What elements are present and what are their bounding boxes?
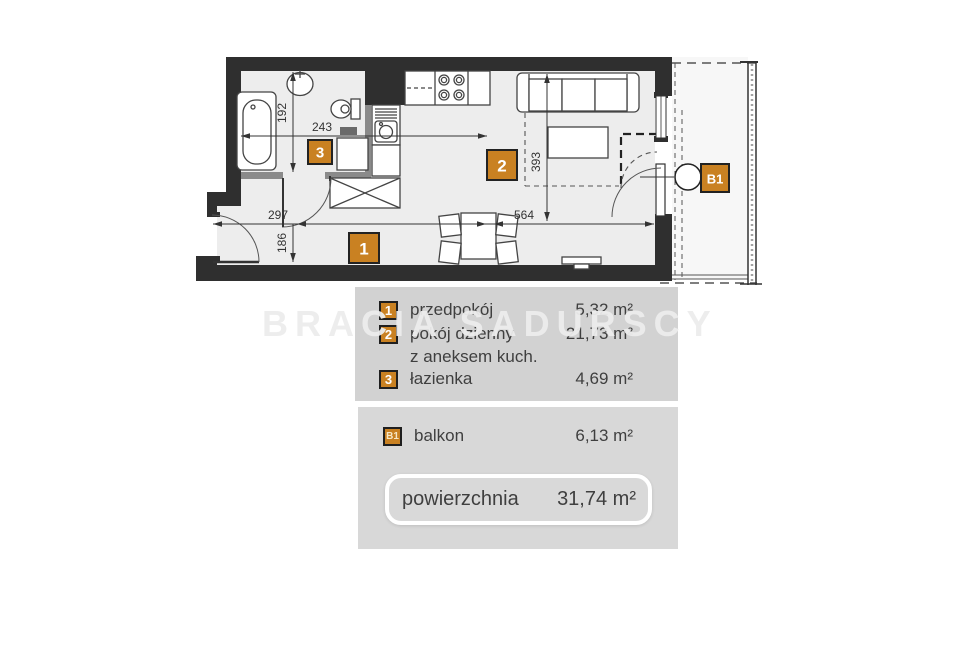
legend-hall-label: przedpokój (410, 300, 575, 320)
balcony-badge-number: B1 (707, 172, 724, 187)
dim-label-243: 243 (312, 120, 332, 134)
bath-south-wall-left (241, 172, 283, 179)
balcony-door-leaf (656, 164, 665, 216)
dim-label-192: 192 (275, 103, 289, 123)
chair-bottom-left (439, 241, 461, 264)
dining-table-icon (461, 213, 496, 259)
sofa-cushion-3 (595, 79, 627, 111)
radiator-foot (574, 264, 589, 269)
dim-label-186: 186 (275, 233, 289, 253)
balcony-callout-circle (675, 164, 701, 190)
dim-label-393: 393 (529, 152, 543, 172)
toilet-inner (341, 105, 349, 113)
entry-jamb-top (214, 212, 220, 217)
sofa-cushion-2 (562, 79, 595, 111)
wall-right-upper (655, 57, 672, 96)
washing-machine-icon (337, 138, 368, 170)
chair-top-left (439, 214, 461, 237)
legend-balcony-panel: B1 balkon 6,13 m² powierzchnia 31,74 m² (358, 407, 678, 549)
radiator-icon (562, 257, 601, 264)
entry-jamb-bottom (214, 256, 220, 261)
legend-balcony-area: 6,13 m² (575, 426, 633, 446)
legend-balcony-badge: B1 (383, 427, 402, 446)
legend-rooms-panel: 1 przedpokój 5,32 m² 2 pokój dzienny 21,… (355, 287, 678, 401)
legend-row-balcony: B1 balkon 6,13 m² (383, 424, 633, 448)
total-area-value: 31,74 m² (557, 488, 648, 511)
legend-living-label-line2: z aneksem kuch. (410, 347, 633, 367)
toilet-tank (351, 99, 360, 119)
legend-bath-label: łazienka (410, 369, 575, 389)
legend-hall-area: 5,32 m² (575, 300, 633, 320)
bathtub-drain (251, 105, 255, 109)
legend-bath-badge: 3 (379, 370, 398, 389)
dim-label-297: 297 (268, 208, 288, 222)
wall-step (207, 192, 241, 206)
sink-basin (380, 126, 393, 139)
legend-living-label: pokój dzienny (410, 324, 566, 344)
hall-badge-number: 1 (359, 240, 368, 259)
utility-shaft (365, 71, 405, 105)
bath-badge-number: 3 (316, 145, 324, 162)
toilet-wall-stub (340, 127, 357, 135)
total-area-label: powierzchnia (389, 488, 519, 511)
coffee-table-icon (548, 127, 608, 158)
total-area-box: powierzchnia 31,74 m² (385, 474, 652, 525)
living-badge-number: 2 (497, 157, 506, 176)
legend-living-area: 21,73 m² (566, 324, 633, 344)
legend-row-hall: 1 przedpokój 5,32 m² (379, 298, 633, 322)
entry-opening (207, 217, 217, 256)
wall-bottom (196, 265, 672, 281)
legend-living-badge: 2 (379, 325, 398, 344)
legend-row-living: 2 pokój dzienny 21,73 m² (379, 322, 633, 346)
chair-bottom-right (496, 241, 518, 264)
wardrobe (330, 178, 400, 208)
legend-hall-badge: 1 (379, 301, 398, 320)
bathtub-inner (243, 100, 271, 164)
legend-bath-area: 4,69 m² (575, 369, 633, 389)
legend-row-living-line2: z aneksem kuch. (379, 346, 633, 367)
sink-tap (380, 123, 383, 126)
legend-balcony-label: balkon (414, 426, 575, 446)
wall-top (226, 57, 672, 71)
wall-right-lower (655, 214, 672, 281)
legend-row-bath: 3 łazienka 4,69 m² (379, 367, 633, 391)
dim-label-564: 564 (514, 208, 534, 222)
floorplan-page: 243 192 297 186 564 393 1 2 3 B1 1 przed… (0, 0, 969, 654)
kitchen-cabinet (372, 145, 400, 176)
sofa-cushion-1 (529, 79, 562, 111)
